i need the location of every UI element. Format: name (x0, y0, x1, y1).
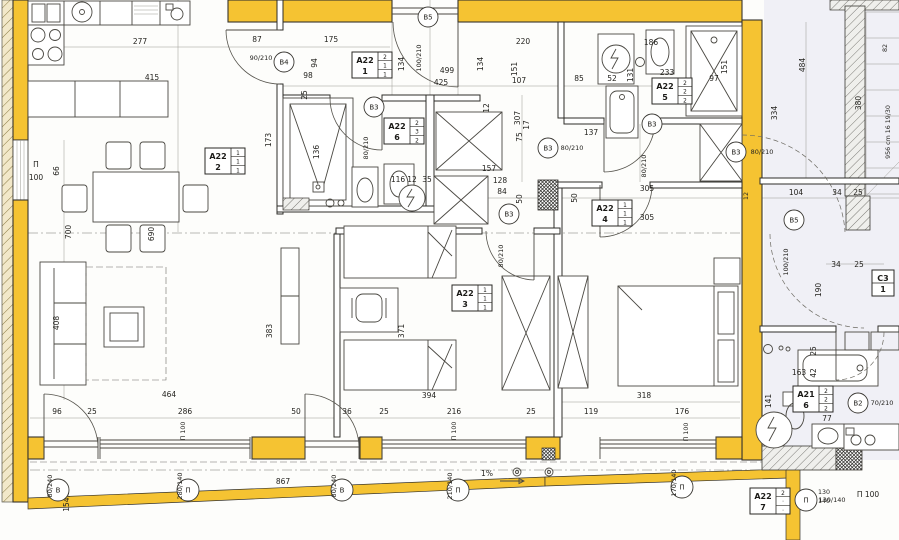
bottom-pier-3 (360, 437, 382, 459)
room-label-name: A22 (656, 82, 673, 91)
kitchen-island (28, 81, 168, 117)
room-label-cell: 2 (415, 138, 419, 144)
dim-label: 25 (87, 407, 97, 416)
room-label-cell: 2 (781, 491, 785, 497)
room-label-name: A22 (209, 152, 226, 161)
dim-label: 34 (831, 260, 841, 269)
dim-label: 25 (300, 90, 309, 100)
door-size-label: 100/210 (415, 44, 423, 71)
dim-label: 34 (832, 188, 842, 197)
shaft-closet-lower (434, 176, 488, 224)
dim-label: 394 (422, 391, 437, 400)
dim-label: 216 (447, 407, 462, 416)
room-label-name: A22 (388, 122, 405, 131)
dim-label: 151 (510, 62, 519, 77)
room-label: A2272·· (750, 488, 790, 514)
window-size-label: 130/140 (818, 496, 845, 504)
door-tag-id: B3 (369, 104, 378, 112)
door-tag-id: B4 (279, 59, 289, 67)
window-size-label: 210/140 (446, 472, 454, 499)
dim-label: П 100 (683, 423, 690, 442)
room-label: C31 (872, 270, 894, 296)
room-label-cell: 2 (383, 55, 387, 61)
dim-label: 98 (303, 71, 313, 80)
room-label-number: 6 (803, 401, 809, 410)
dim-label: 690 (147, 227, 156, 242)
dim-label: 956 cm 16 19/30 (885, 105, 892, 159)
room-label-cell: · (782, 500, 784, 506)
left-window (13, 140, 28, 200)
dim-label: 128 (493, 176, 508, 185)
room-label-number: 3 (462, 300, 468, 309)
tub-bath5 (606, 86, 638, 138)
wardrobe-child (502, 276, 550, 390)
dim-label: 17 (522, 120, 531, 130)
dim-label: П 100 (451, 422, 458, 441)
shower-bath5 (686, 26, 742, 116)
left-wall-lower (13, 200, 28, 502)
dim-label: 25 (853, 188, 863, 197)
room-label-cell: 1 (623, 203, 627, 209)
room-label-number: 6 (394, 133, 400, 142)
room-label-cell: 1 (236, 160, 240, 166)
room-label-number: 5 (662, 93, 668, 102)
stair-wall-block (846, 196, 870, 230)
top-wall-left (228, 0, 392, 22)
room-label: A225222 (652, 78, 692, 104)
room-label-number: 4 (602, 215, 608, 224)
room-label-cell: 2 (683, 81, 687, 87)
dim-label: 85 (574, 74, 584, 83)
dim-label: 233 (660, 68, 675, 77)
door-size-label: 90/210 (250, 54, 273, 62)
dim-label: 220 (516, 37, 531, 46)
bed-child-2 (344, 340, 456, 390)
window-size-label: 80/240 (330, 475, 338, 498)
toilet-bath6 (352, 167, 378, 207)
right-party-wall (742, 20, 762, 460)
dim-label: 157 (482, 164, 497, 173)
dim-label: 151 (720, 60, 729, 75)
dim-label: 408 (52, 316, 61, 331)
window-tag-id: П (803, 497, 808, 505)
dim-label: 116 (391, 175, 406, 184)
room-label-number: 1 (880, 285, 886, 294)
window-size-label: 80/240 (46, 475, 54, 498)
room-label: A223111 (452, 285, 492, 311)
room-label-cell: 3 (415, 130, 419, 136)
door-size-label: 80/210 (497, 245, 505, 268)
dim-label: 50 (291, 407, 301, 416)
room-label-number: 2 (215, 163, 221, 172)
dim-label: 12 (482, 103, 491, 113)
door-size-label: 80/210 (751, 148, 774, 156)
dim-label: 25 (854, 260, 864, 269)
dim-label: 318 (637, 391, 652, 400)
structural-column (538, 180, 558, 210)
door-size-label: 80/210 (640, 155, 648, 178)
door-size-label: 100/210 (782, 248, 790, 275)
dim-label: 383 (265, 324, 274, 339)
dim-label: 380 (854, 96, 863, 111)
dim-label: 36 (342, 407, 352, 416)
room-label-cell: 2 (824, 406, 828, 412)
dim-label: 134 (476, 57, 485, 72)
shaft-bath6 (283, 198, 309, 210)
room-label-number: 7 (760, 503, 766, 512)
bottom-pier-1 (28, 437, 44, 459)
dim-label: 100 (29, 173, 44, 182)
room-label-cell: 1 (623, 220, 627, 226)
room-label-cell: 2 (683, 90, 687, 96)
room-label-name: C3 (877, 274, 888, 283)
window-tag-id: П (679, 484, 684, 492)
left-wall-insulation (2, 0, 13, 502)
dim-label: 66 (52, 166, 61, 176)
dim-label: 334 (770, 106, 779, 121)
dim-label: 700 (64, 225, 73, 240)
room-label-cell: 1 (483, 305, 487, 311)
room-label-cell: 2 (683, 98, 687, 104)
room-label-name: A22 (754, 492, 771, 501)
window-tag-id: П (185, 487, 190, 495)
dim-label: 84 (497, 187, 507, 196)
dim-label: 484 (798, 58, 807, 73)
dim-label: 12 (407, 175, 417, 184)
dim-label: 87 (252, 35, 262, 44)
dim-label: 136 (312, 145, 321, 160)
shaft-closet-upper (436, 112, 502, 170)
bottom-column (542, 448, 555, 460)
room-label-name: A21 (797, 390, 815, 399)
door-tag-id: B2 (853, 400, 862, 408)
room-label-number: 1 (362, 67, 368, 76)
room-label-cell: 1 (483, 288, 487, 294)
room-label-cell: 2 (824, 398, 828, 404)
dim-label: 104 (789, 188, 804, 197)
dim-label: П 100 (180, 422, 187, 441)
tv-unit (281, 248, 299, 344)
room-label: A222111 (205, 148, 245, 174)
dim-label: 77 (822, 414, 832, 423)
dim-label: 371 (397, 324, 406, 339)
room-label-cell: 1 (383, 72, 387, 78)
bottom-pier-2 (252, 437, 305, 459)
dim-label: 134 (397, 57, 406, 72)
dim-label: 307 (513, 111, 522, 126)
dim-label: 190 (814, 283, 823, 298)
window-tag-id: В (340, 487, 345, 495)
left-wall-upper (13, 0, 28, 140)
dim-label: 1% (481, 469, 493, 478)
room-label-cell: 1 (383, 64, 387, 70)
dim-label: П (33, 160, 39, 169)
door-size-label: 80/210 (362, 137, 370, 160)
dim-label: 25 (526, 407, 536, 416)
dim-label: 415 (145, 73, 160, 82)
dim-label: 96 (52, 407, 62, 416)
dim-label: 186 (644, 38, 659, 47)
dim-label: 464 (162, 390, 177, 399)
room-label: A216222 (793, 386, 833, 412)
door-tag-id: B5 (423, 14, 432, 22)
dim-label: 97 (709, 74, 719, 83)
door-size-label: 80/210 (561, 144, 584, 152)
bottom-pier-5 (716, 437, 742, 459)
room-label: A221211 (352, 52, 392, 78)
floor-plan-scan: 2774158717598942517313622049942510713413… (0, 0, 899, 540)
room-label-cell: 1 (236, 168, 240, 174)
dim-label: 137 (584, 128, 599, 137)
floor-plan-svg: 2774158717598942517313622049942510713413… (0, 0, 899, 540)
boiler-a21 (756, 412, 792, 448)
dim-label: 42 (809, 368, 818, 378)
dim-label: 50 (570, 193, 579, 203)
dim-label: 107 (512, 76, 527, 85)
dim-label: 163 (792, 368, 807, 377)
room-label-name: A22 (596, 204, 613, 213)
door-tag-id: B3 (647, 121, 656, 129)
door-tag-id: B5 (789, 217, 798, 225)
dim-label: 305 (640, 213, 655, 222)
top-wall-right (458, 0, 742, 22)
dim-label: 131 (626, 68, 635, 83)
dim-label: 12 (743, 192, 750, 200)
dim-label: 52 (607, 74, 617, 83)
window-tag-id: П (455, 487, 460, 495)
door-tag-id: B3 (731, 149, 740, 157)
room-label-name: A22 (456, 289, 473, 298)
basin-a21 (812, 424, 844, 448)
room-label-cell: 2 (824, 389, 828, 395)
door-size-label: 70/210 (871, 399, 894, 407)
boiler-bath6 (399, 185, 425, 211)
room-label-cell: · (782, 508, 784, 514)
window-tag-id: В (56, 487, 61, 495)
room-label: A224111 (592, 200, 632, 226)
dim-label: 277 (133, 37, 148, 46)
cooktop (28, 25, 64, 65)
dim-label: 25 (379, 407, 389, 416)
dim-label: 25 (809, 346, 818, 356)
bed-child-1 (344, 226, 456, 278)
wardrobe-master (558, 276, 588, 388)
door-tag-id: B3 (543, 145, 552, 153)
kitchen-counter (28, 1, 190, 25)
room-label-cell: 1 (236, 151, 240, 157)
dim-label: 82 (882, 44, 889, 52)
dim-label: 867 (276, 477, 291, 486)
sofa (40, 262, 86, 385)
door-tag-id: B3 (504, 211, 513, 219)
room-label: A226232 (384, 118, 424, 144)
dim-label: 286 (178, 407, 193, 416)
dim-label: 141 (764, 394, 773, 409)
dim-label: 94 (310, 58, 319, 68)
dim-label: П 100 (857, 490, 880, 499)
dim-label: 175 (324, 35, 339, 44)
desk (340, 288, 398, 332)
a21-bottom-wall (762, 446, 836, 470)
dim-label: 50 (515, 194, 524, 204)
dim-label: 176 (675, 407, 690, 416)
dim-label: 119 (584, 407, 599, 416)
room-label-cell: 1 (483, 297, 487, 303)
room-label-name: A22 (356, 56, 373, 65)
room-label-cell: 2 (415, 121, 419, 127)
dim-label: 75 (515, 132, 524, 142)
room-label-cell: 1 (623, 212, 627, 218)
dim-label: 130 (818, 489, 830, 496)
coffee-table (104, 307, 144, 347)
window-size-label: 170/140 (670, 469, 678, 496)
dim-label: 499 (440, 66, 455, 75)
dim-label: 35 (422, 175, 432, 184)
window-size-label: 280/140 (176, 472, 184, 499)
dim-label: 305 (640, 184, 655, 193)
dim-label: 173 (264, 133, 273, 148)
dim-label: 425 (434, 78, 449, 87)
